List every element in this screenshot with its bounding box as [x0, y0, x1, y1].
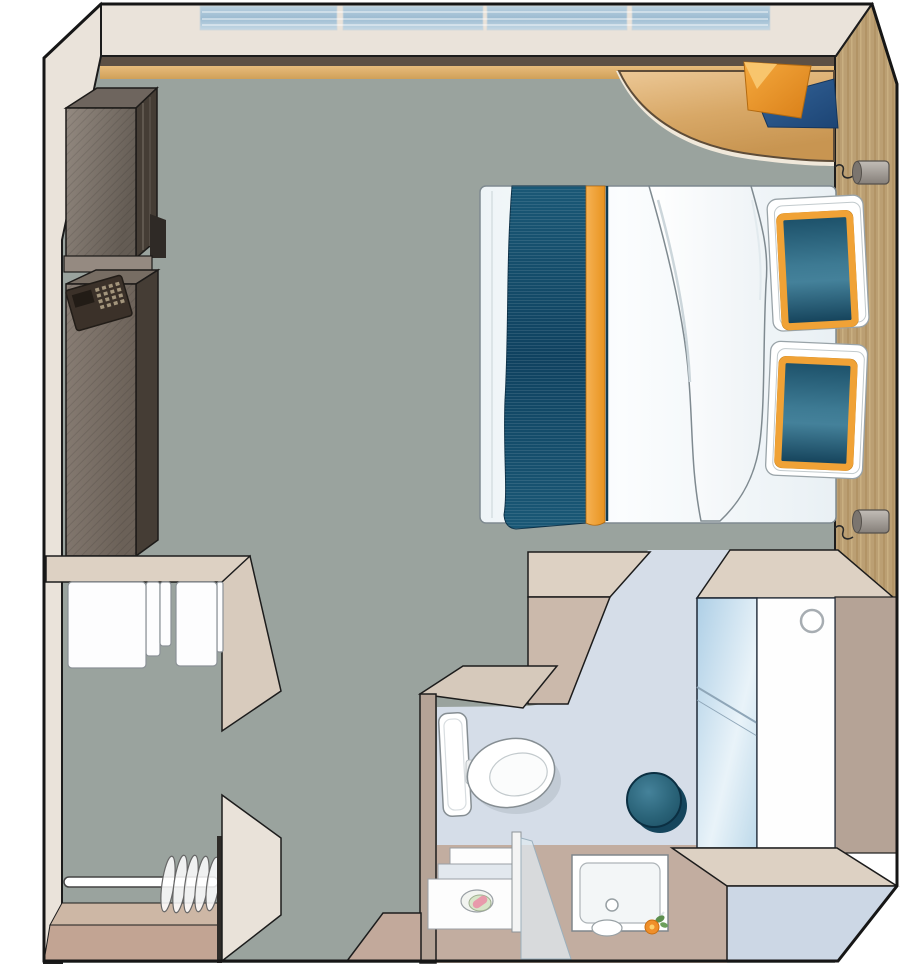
window-pane [487, 6, 627, 30]
safe-cabinet [65, 270, 158, 556]
flower-center [650, 925, 655, 930]
stool-top [627, 773, 681, 827]
right-outer-wall [835, 597, 897, 853]
window-pane [200, 6, 337, 30]
bed-runner-texture [504, 186, 586, 529]
pillow-bottom [765, 341, 868, 479]
window-pane [343, 6, 483, 30]
pillow-teal-panel [780, 213, 856, 327]
shower-drain [606, 899, 618, 911]
door-glass-panel [697, 598, 757, 848]
shower-tray [580, 863, 660, 923]
window-pane [632, 6, 770, 30]
pillow-teal-panel [778, 359, 855, 467]
wardrobe-door-panels [68, 582, 223, 668]
coat-hangers [158, 854, 223, 913]
bathroom-door-assembly [697, 598, 835, 848]
pillow-top [767, 195, 870, 332]
closet-floor-lower [44, 925, 218, 961]
floor-plan-canvas [0, 0, 900, 970]
wardrobe-wall-top [46, 556, 250, 582]
runner-orange-trim [586, 186, 605, 525]
lamp-cap [853, 162, 862, 184]
bathroom-door [757, 598, 835, 848]
closet-floor-upper [50, 903, 218, 925]
shower-step [592, 920, 622, 936]
safe-side-face [136, 270, 158, 556]
tv-cabinet [64, 88, 166, 272]
vanity-step-middle [438, 864, 515, 879]
cabinet-front-texture [66, 108, 136, 258]
window-wall-shadow-strip [100, 56, 835, 66]
vanity-step-top [450, 848, 515, 864]
tv-foot [150, 214, 166, 258]
door-knob [801, 610, 823, 632]
lamp-cap [853, 511, 862, 533]
partition-post [512, 832, 521, 932]
floor-plan-svg [0, 0, 900, 970]
